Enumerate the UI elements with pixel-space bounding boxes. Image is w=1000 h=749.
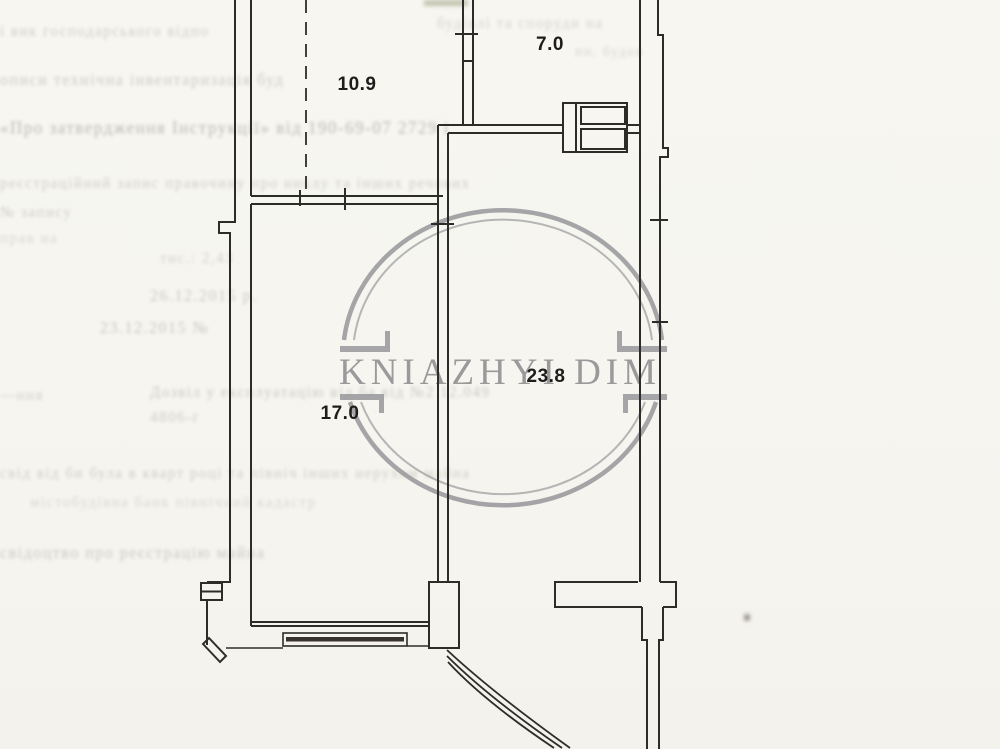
vent-shaft-outer: [563, 103, 627, 152]
wall-middle-bottom-block: [429, 582, 459, 648]
wall-10-9-bottom: [251, 196, 443, 204]
wall-left-outer: [207, 0, 235, 582]
wall-10-9-right: [463, 0, 473, 125]
vent-shaft-cell-bottom: [581, 129, 625, 149]
balcony-curve-3: [448, 662, 554, 748]
wall-middle-vertical: [438, 125, 448, 582]
balcony-curve-1: [447, 650, 570, 748]
balcony-curve-2: [447, 656, 562, 748]
balcony-window-glazing: [286, 637, 404, 642]
vent-shaft-cell-top: [581, 107, 625, 124]
room-label-7-0: 7.0: [536, 34, 564, 56]
wall-below-cross-right: [659, 607, 663, 749]
wall-left-chamfer: [203, 638, 226, 662]
cross-junction-right: [660, 582, 676, 607]
room-label-23-8: 23.8: [527, 366, 566, 388]
scanned-floor-plan-page: і вик господарського відпобудівлі та спо…: [0, 0, 1000, 749]
cross-junction-left: [555, 582, 642, 607]
wall-right-outer: [658, 0, 668, 582]
wall-17-0-bottom: [251, 622, 429, 626]
floor-plan-drawing: [0, 0, 1000, 749]
room-label-17-0: 17.0: [321, 403, 360, 425]
wall-below-cross-left: [642, 607, 647, 749]
room-label-10-9: 10.9: [338, 74, 377, 96]
